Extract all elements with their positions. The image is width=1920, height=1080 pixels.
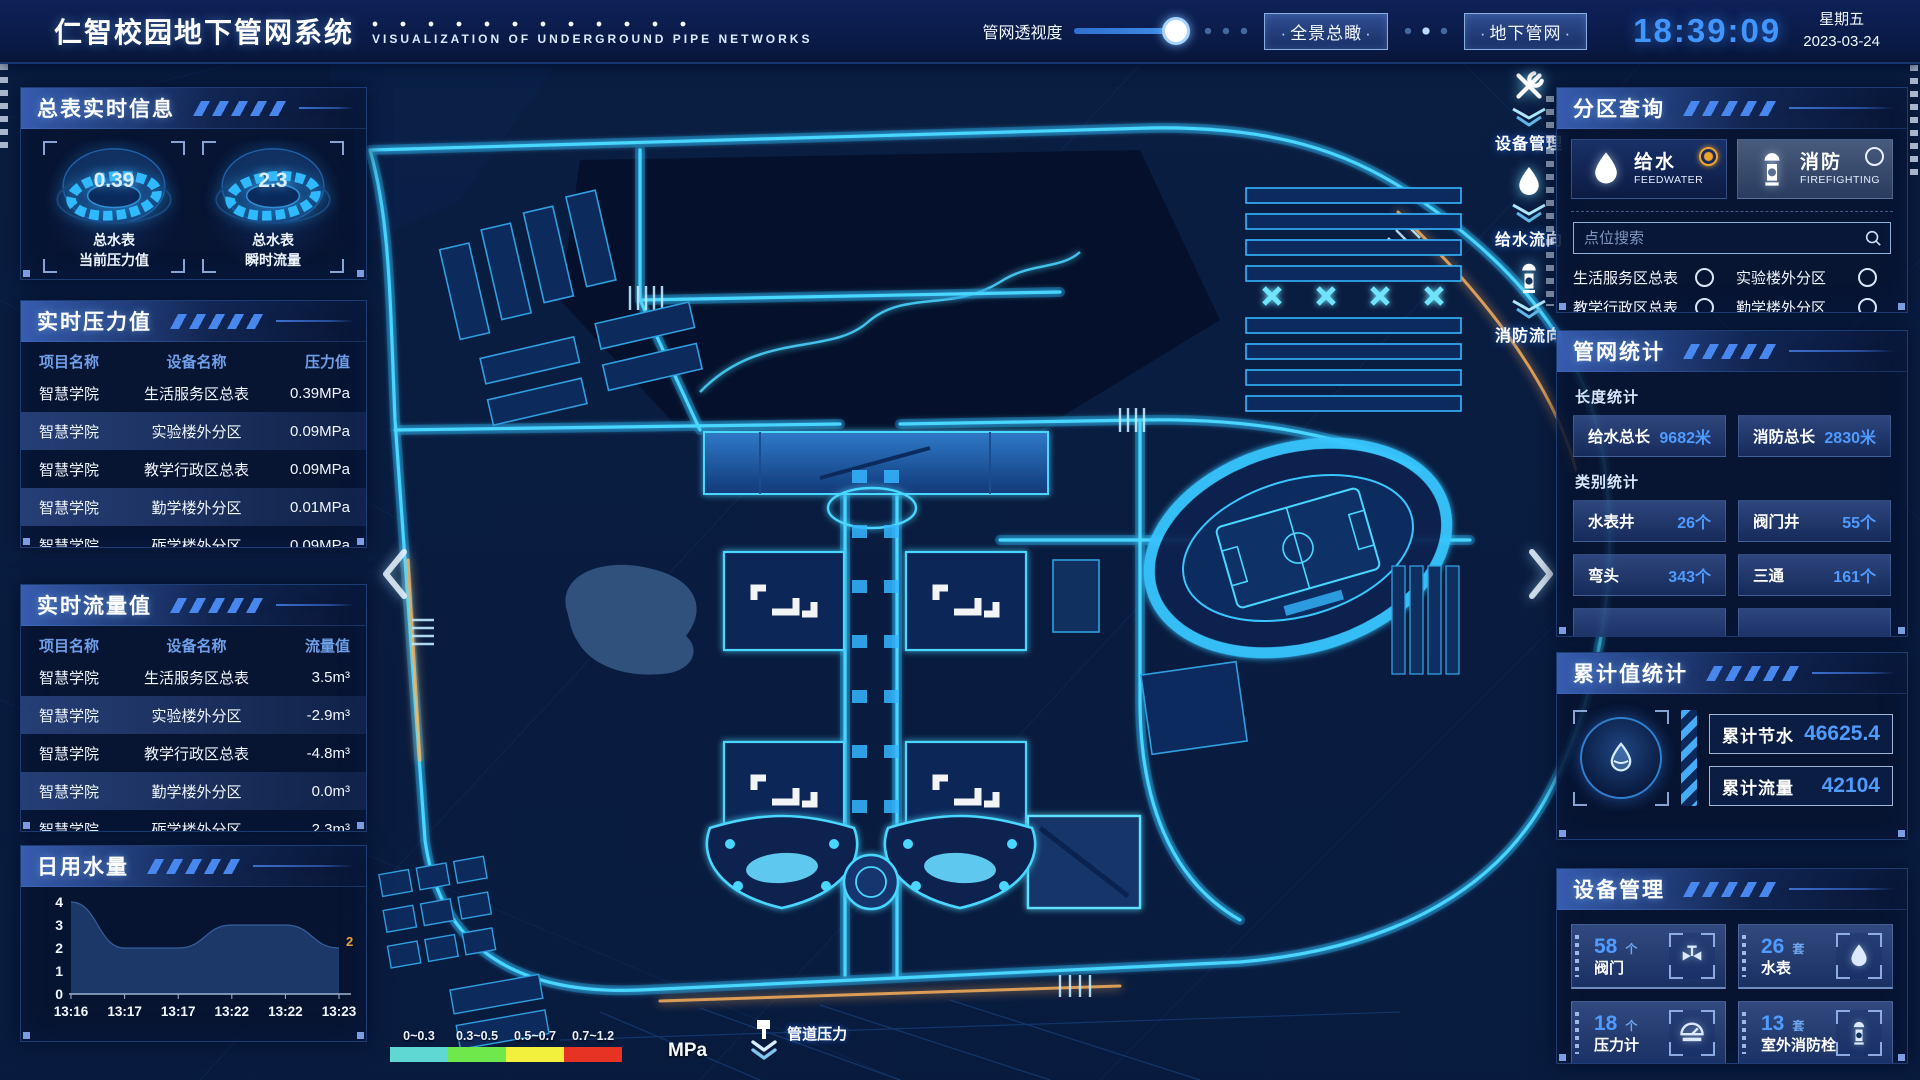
pressure-cell: 0.09MPa (250, 461, 366, 478)
device-label: 压力计 (1594, 1037, 1639, 1056)
flow-header-cell: 流量值 (250, 635, 366, 656)
svg-text:3: 3 (55, 917, 63, 933)
flow-cell: 0.0m³ (250, 783, 366, 800)
pressure-table-header: 项目名称设备名称压力值 (21, 348, 366, 374)
panel-title: 分区查询 (1573, 93, 1665, 123)
edge-zipper-decoration (1546, 96, 1554, 306)
svg-text:1: 1 (55, 963, 63, 979)
water-drop-icon (1511, 164, 1547, 200)
header-line-decoration (1789, 107, 1895, 109)
flow-cell: 勤学楼外分区 (143, 781, 250, 802)
pressure-row[interactable]: 智慧学院勤学楼外分区0.01MPa (21, 488, 366, 526)
chevron-down-icon (1507, 106, 1551, 128)
flow-cell: 砺学楼外分区 (143, 819, 250, 833)
pressure-gauge-icon (1669, 1010, 1715, 1056)
legend-segment: 0.7~1.2 (564, 1029, 622, 1062)
gauge-row: 0.39 总水表 当前压力值 2.3 总水表 瞬时流量 (21, 129, 366, 273)
legend-segments: 0~0.30.3~0.50.5~0.70.7~1.2 (390, 1029, 622, 1062)
length-stats-grid: 给水总长9682米消防总长2830米 (1573, 415, 1891, 457)
device-card[interactable]: 58个阀门 (1571, 924, 1726, 989)
slashes-decoration (193, 101, 287, 116)
panorama-overview-button[interactable]: 全景总瞰 (1264, 13, 1387, 50)
stat-box-clipped (1738, 608, 1891, 637)
pressure-cell: 0.01MPa (250, 499, 366, 516)
svg-text:2: 2 (346, 934, 353, 949)
panel-title: 实时压力值 (37, 306, 152, 336)
gauge-value: 0.39 (43, 169, 185, 193)
device-info: 18个压力计 (1594, 1011, 1639, 1056)
stat-box: 三通161个 (1738, 554, 1891, 596)
legend-color-swatch (564, 1047, 622, 1062)
cumulative-saved-row: 累计节水 46625.4 (1709, 714, 1893, 754)
hazard-stripe-decoration (1681, 710, 1697, 806)
gauge-label: 总水表 当前压力值 (43, 231, 185, 270)
panel-device-management: 设备管理 58个阀门26套水表18个压力计13套室外消防栓 (1556, 868, 1908, 1064)
stat-label: 累计节水 (1722, 722, 1794, 747)
app-title: 仁智校园地下管网系统 (54, 11, 354, 51)
tab-label: 给水 (1634, 152, 1703, 174)
zone-item-label: 勤学楼外分区 (1736, 297, 1826, 314)
pressure-row[interactable]: 智慧学院生活服务区总表0.39MPa (21, 374, 366, 412)
zone-item-label: 实验楼外分区 (1736, 267, 1826, 288)
water-badge (1573, 710, 1669, 806)
point-search[interactable] (1573, 222, 1891, 254)
radio-icon[interactable] (1695, 298, 1714, 314)
stat-label: 三通 (1753, 564, 1784, 586)
zone-item-label: 教学行政区总表 (1573, 297, 1678, 314)
radio-icon[interactable] (1695, 268, 1714, 287)
flow-row[interactable]: 智慧学院实验楼外分区-2.9m³ (21, 696, 366, 734)
top-header-bar: 仁智校园地下管网系统 VISUALIZATION OF UNDERGROUND … (0, 0, 1920, 64)
hydrant-icon (1836, 1010, 1882, 1056)
dots-decoration (1404, 27, 1450, 35)
dots-decoration (372, 21, 702, 27)
pressure-cell: 智慧学院 (21, 497, 143, 518)
stat-box: 消防总长2830米 (1738, 415, 1891, 457)
pressure-cell: 0.39MPa (250, 385, 366, 402)
svg-text:13:17: 13:17 (107, 1004, 142, 1019)
radio-icon[interactable] (1858, 298, 1877, 314)
device-card[interactable]: 13套室外消防栓 (1738, 1001, 1893, 1064)
water-drop-icon (1604, 741, 1638, 775)
water-drop-icon (1586, 149, 1626, 189)
gauge-label: 总水表 瞬时流量 (202, 231, 344, 270)
panel-title: 累计值统计 (1573, 658, 1688, 688)
radio-selected-icon[interactable] (1699, 147, 1718, 166)
cumulative-flow-row: 累计流量 42104 (1709, 766, 1893, 806)
flow-cell: 智慧学院 (21, 781, 143, 802)
device-count-unit: 个 (1625, 942, 1637, 956)
pressure-header-cell: 项目名称 (21, 351, 143, 372)
svg-text:4: 4 (55, 894, 63, 910)
device-count-number: 26 (1761, 935, 1784, 958)
slider-knob[interactable] (1162, 17, 1190, 45)
pipe-pressure-label: 管道压力 (787, 1023, 847, 1044)
flow-cell: 智慧学院 (21, 667, 143, 688)
stat-box: 水表井26个 (1573, 500, 1726, 542)
panel-realtime-flow: 实时流量值 项目名称设备名称流量值 智慧学院生活服务区总表3.5m³智慧学院实验… (20, 584, 367, 832)
pressure-row[interactable]: 智慧学院教学行政区总表0.09MPa (21, 450, 366, 488)
panel-title: 总表实时信息 (37, 93, 175, 123)
panel-realtime-pressure: 实时压力值 项目名称设备名称压力值 智慧学院生活服务区总表0.39MPa智慧学院… (20, 300, 367, 548)
device-count-number: 13 (1761, 1012, 1784, 1035)
device-count: 13套 (1761, 1011, 1836, 1037)
header-line-decoration (299, 107, 354, 109)
device-count-number: 18 (1594, 1012, 1617, 1035)
stat-box: 给水总长9682米 (1573, 415, 1726, 457)
legend-segment: 0.5~0.7 (506, 1029, 564, 1062)
flow-table-header: 项目名称设备名称流量值 (21, 632, 366, 658)
stat-label: 水表井 (1588, 510, 1635, 532)
tab-text: 给水 FEEDWATER (1634, 152, 1703, 186)
panel-header: 设备管理 (1557, 869, 1907, 910)
hydrant-icon (1511, 260, 1547, 296)
device-label: 阀门 (1594, 960, 1637, 979)
device-count-unit: 套 (1792, 1019, 1804, 1033)
panel-header: 分区查询 (1557, 88, 1907, 129)
stat-value: 161个 (1833, 563, 1876, 587)
panel-title: 实时流量值 (37, 590, 152, 620)
map-next-arrow[interactable] (1524, 546, 1558, 602)
map-prev-arrow[interactable] (378, 546, 412, 602)
app-subtitle: VISUALIZATION OF UNDERGROUND PIPE NETWOR… (372, 32, 812, 46)
pressure-cell: 智慧学院 (21, 383, 143, 404)
flow-cell: -2.9m³ (250, 707, 366, 724)
pressure-cell: 生活服务区总表 (143, 383, 250, 404)
zone-item-label: 生活服务区总表 (1573, 267, 1678, 288)
legend-range-label: 0.3~0.5 (456, 1029, 498, 1043)
stat-value: 343个 (1668, 563, 1711, 587)
legend-range-label: 0~0.3 (403, 1029, 435, 1043)
zone-list-item[interactable]: 教学行政区总表 (1573, 292, 1728, 313)
device-info: 58个阀门 (1594, 934, 1637, 979)
hydrant-icon (1752, 149, 1792, 189)
device-grid: 58个阀门26套水表18个压力计13套室外消防栓 (1571, 924, 1893, 1064)
gauge-label-line1: 总水表 (202, 231, 344, 251)
header-line-decoration (1789, 888, 1895, 890)
panel-header: 累计值统计 (1557, 653, 1907, 694)
pipe-opacity-label: 管网透视度 (982, 19, 1062, 43)
flow-cell: 智慧学院 (21, 819, 143, 833)
radio-unselected-icon[interactable] (1865, 147, 1884, 166)
tools-icon (1511, 68, 1547, 104)
tab-sublabel: FEEDWATER (1634, 174, 1703, 186)
legend-segment: 0~0.3 (390, 1029, 448, 1062)
device-count-unit: 个 (1625, 1019, 1637, 1033)
stat-label: 消防总长 (1753, 425, 1815, 447)
gauge-label-line2: 当前压力值 (43, 251, 185, 271)
pressure-cell: 智慧学院 (21, 421, 143, 442)
slashes-decoration (1706, 666, 1800, 681)
panel-cumulative-stats: 累计值统计 累计节水 46625.4 累计流量 42104 (1556, 652, 1908, 840)
pressure-header-cell: 压力值 (250, 351, 366, 372)
gauge-label-line1: 总水表 (43, 231, 185, 251)
pressure-meter-icon (749, 1018, 779, 1062)
flow-header-cell: 项目名称 (21, 635, 143, 656)
panel-header: 管网统计 (1557, 331, 1907, 372)
device-count: 58个 (1594, 934, 1637, 960)
panel-zone-query: 分区查询 给水 FEEDWATER 消防 FIREFIGHTING (1556, 87, 1908, 313)
pressure-cell: 0.09MPa (250, 537, 366, 549)
legend-color-swatch (506, 1047, 564, 1062)
pressure-cell: 智慧学院 (21, 459, 143, 480)
flow-row[interactable]: 智慧学院生活服务区总表3.5m³ (21, 658, 366, 696)
device-info: 13套室外消防栓 (1761, 1011, 1836, 1056)
stat-label: 累计流量 (1722, 774, 1794, 799)
flow-header-cell: 设备名称 (143, 635, 250, 656)
weekday: 星期五 (1819, 9, 1864, 31)
flow-cell: 实验楼外分区 (143, 705, 250, 726)
pressure-cell: 勤学楼外分区 (143, 497, 250, 518)
pipe-pressure-indicator: 管道压力 (749, 1018, 847, 1062)
stat-box: 阀门井55个 (1738, 500, 1891, 542)
search-input[interactable] (1574, 230, 1864, 247)
pressure-cell: 砺学楼外分区 (143, 535, 250, 549)
cumulative-values: 累计节水 46625.4 累计流量 42104 (1709, 714, 1893, 806)
slashes-decoration (1683, 344, 1777, 359)
header-line-decoration (253, 865, 354, 867)
device-card[interactable]: 18个压力计 (1571, 1001, 1726, 1064)
daily-water-chart: 4321013:1613:1713:1713:2213:2213:232 (25, 892, 361, 1036)
pressure-gauge: 0.39 总水表 当前压力值 (43, 141, 185, 273)
dashed-divider (1571, 211, 1893, 212)
header-line-decoration (276, 320, 354, 322)
stat-value: 42104 (1822, 774, 1880, 798)
stat-value: 46625.4 (1804, 722, 1880, 746)
stat-value: 9682米 (1659, 424, 1711, 448)
water-drop-badge (1580, 717, 1662, 799)
side-tool-label: 消防流向 (1495, 322, 1563, 346)
date-block: 星期五 2023-03-24 (1803, 9, 1880, 53)
category-stats-grid: 水表井26个阀门井55个弯头343个三通161个 (1573, 500, 1891, 637)
svg-text:13:22: 13:22 (268, 1004, 303, 1019)
device-label: 水表 (1761, 960, 1804, 979)
flow-cell: 生活服务区总表 (143, 667, 250, 688)
panel-header: 实时流量值 (21, 585, 366, 626)
svg-text:13:23: 13:23 (322, 1004, 357, 1019)
pressure-row[interactable]: 智慧学院实验楼外分区0.09MPa (21, 412, 366, 450)
device-label: 室外消防栓 (1761, 1037, 1836, 1056)
flow-cell: 2.3m³ (250, 821, 366, 833)
pipe-opacity-slider[interactable] (1074, 28, 1178, 34)
stat-value: 2830米 (1824, 424, 1876, 448)
device-count: 26套 (1761, 934, 1804, 960)
stat-label: 阀门井 (1753, 510, 1800, 532)
panel-pipe-statistics: 管网统计 长度统计 给水总长9682米消防总长2830米 类别统计 水表井26个… (1556, 330, 1908, 637)
app-subtitle-wrap: VISUALIZATION OF UNDERGROUND PIPE NETWOR… (372, 21, 812, 46)
clock: 18:39:09 (1633, 12, 1781, 50)
panel-title: 日用水量 (37, 851, 129, 881)
flow-cell: -4.8m³ (250, 745, 366, 762)
device-count-unit: 套 (1792, 942, 1804, 956)
slashes-decoration (1683, 101, 1777, 116)
header-line-decoration (1789, 350, 1895, 352)
dots-decoration (1204, 27, 1250, 35)
legend-range-label: 0.7~1.2 (572, 1029, 614, 1043)
pressure-row[interactable]: 智慧学院砺学楼外分区0.09MPa (21, 526, 366, 548)
slashes-decoration (170, 314, 264, 329)
svg-text:13:16: 13:16 (54, 1004, 89, 1019)
panel-header: 实时压力值 (21, 301, 366, 342)
zone-list-item[interactable]: 生活服务区总表 (1573, 262, 1728, 292)
valve-icon (1669, 933, 1715, 979)
header-line-decoration (1812, 672, 1895, 674)
panel-header: 总表实时信息 (21, 88, 366, 129)
chevron-down-icon (1507, 202, 1551, 224)
water-meter-icon (1836, 933, 1882, 979)
svg-text:13:22: 13:22 (215, 1004, 250, 1019)
gauge-value: 2.3 (202, 169, 344, 193)
flow-cell: 智慧学院 (21, 705, 143, 726)
legend-color-swatch (448, 1047, 506, 1062)
device-info: 26套水表 (1761, 934, 1804, 979)
length-stats-label: 长度统计 (1575, 386, 1907, 407)
device-count-number: 58 (1594, 935, 1617, 958)
legend-segment: 0.3~0.5 (448, 1029, 506, 1062)
zone-tabs: 给水 FEEDWATER 消防 FIREFIGHTING (1557, 129, 1907, 199)
stat-box: 弯头343个 (1573, 554, 1726, 596)
panel-daily-water: 日用水量 4321013:1613:1713:1713:2213:2213:23… (20, 845, 367, 1042)
device-card[interactable]: 26套水表 (1738, 924, 1893, 989)
svg-text:13:17: 13:17 (161, 1004, 196, 1019)
flow-table-body: 智慧学院生活服务区总表3.5m³智慧学院实验楼外分区-2.9m³智慧学院教学行政… (21, 658, 366, 832)
tab-firefighting[interactable]: 消防 FIREFIGHTING (1737, 139, 1893, 199)
cumulative-content: 累计节水 46625.4 累计流量 42104 (1557, 694, 1907, 806)
pressure-header-cell: 设备名称 (143, 351, 250, 372)
search-icon[interactable] (1864, 229, 1882, 247)
panel-meter-realtime-info: 总表实时信息 0.39 总水表 当前压力值 2.3 (20, 87, 367, 280)
date: 2023-03-24 (1803, 31, 1880, 53)
header-controls: 管网透视度 全景总瞰 地下管网 18:39:09 星期五 2023-03-24 (982, 0, 1906, 62)
flow-row[interactable]: 智慧学院教学行政区总表-4.8m³ (21, 734, 366, 772)
panel-title: 设备管理 (1573, 874, 1665, 904)
flow-cell: 3.5m³ (250, 669, 366, 686)
device-count: 18个 (1594, 1011, 1639, 1037)
flow-cell: 教学行政区总表 (143, 743, 250, 764)
chevron-down-icon (1507, 298, 1551, 320)
legend-color-swatch (390, 1047, 448, 1062)
stat-value: 26个 (1677, 509, 1711, 533)
edge-zipper-decoration (0, 64, 8, 152)
svg-text:2: 2 (55, 940, 63, 956)
flow-gauge: 2.3 总水表 瞬时流量 (202, 141, 344, 273)
zone-list: 生活服务区总表实验楼外分区教学行政区总表勤学楼外分区砺学楼外分区宿舍区泵房 (1573, 262, 1891, 313)
flow-cell: 智慧学院 (21, 743, 143, 764)
panel-title: 管网统计 (1573, 336, 1665, 366)
flow-row[interactable]: 智慧学院砺学楼外分区2.3m³ (21, 810, 366, 832)
slashes-decoration (1683, 882, 1777, 897)
panel-header: 日用水量 (21, 846, 366, 887)
zone-list-item[interactable]: 勤学楼外分区 (1736, 292, 1891, 313)
stat-label: 给水总长 (1588, 425, 1650, 447)
radio-icon[interactable] (1858, 268, 1877, 287)
flow-row[interactable]: 智慧学院勤学楼外分区0.0m³ (21, 772, 366, 810)
pressure-table-body: 智慧学院生活服务区总表0.39MPa智慧学院实验楼外分区0.09MPa智慧学院教… (21, 374, 366, 548)
gauge-label-line2: 瞬时流量 (202, 251, 344, 271)
header-line-decoration (276, 604, 354, 606)
slashes-decoration (147, 859, 241, 874)
stat-box-clipped (1573, 608, 1726, 637)
pressure-cell: 教学行政区总表 (143, 459, 250, 480)
pressure-cell: 智慧学院 (21, 535, 143, 549)
stat-value: 55个 (1842, 509, 1876, 533)
slashes-decoration (170, 598, 264, 613)
svg-text:0: 0 (55, 986, 63, 1002)
legend-range-label: 0.5~0.7 (514, 1029, 556, 1043)
brand: 仁智校园地下管网系统 VISUALIZATION OF UNDERGROUND … (54, 11, 812, 51)
stat-label: 弯头 (1588, 564, 1619, 586)
pressure-legend: 0~0.30.3~0.50.5~0.70.7~1.2 MPa 管道压力 (390, 1018, 847, 1062)
pressure-cell: 实验楼外分区 (143, 421, 250, 442)
pressure-cell: 0.09MPa (250, 423, 366, 440)
underground-pipes-button[interactable]: 地下管网 (1464, 13, 1587, 50)
legend-unit: MPa (668, 1040, 707, 1062)
zone-list-item[interactable]: 实验楼外分区 (1736, 262, 1891, 292)
category-stats-label: 类别统计 (1575, 471, 1907, 492)
tab-sublabel: FIREFIGHTING (1800, 174, 1880, 186)
tab-feedwater[interactable]: 给水 FEEDWATER (1571, 139, 1727, 199)
